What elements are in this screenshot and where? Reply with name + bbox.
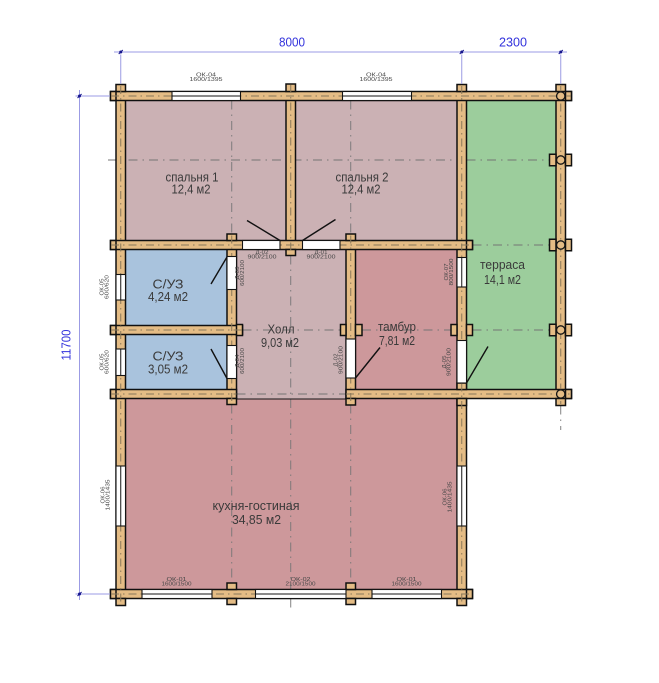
svg-text:12,4 м2: 12,4 м2: [342, 182, 381, 197]
svg-text:34,85 м2: 34,85 м2: [232, 512, 281, 527]
svg-text:кухня-гостиная: кухня-гостиная: [213, 498, 300, 513]
svg-text:14,1 м2: 14,1 м2: [484, 272, 521, 287]
svg-text:900/2100: 900/2100: [447, 348, 453, 376]
svg-text:тамбур: тамбур: [378, 319, 416, 334]
svg-text:4,24 м2: 4,24 м2: [148, 289, 188, 304]
svg-text:900/2100: 900/2100: [338, 346, 344, 374]
svg-text:2100/1500: 2100/1500: [286, 582, 316, 588]
svg-text:1600/1395: 1600/1395: [190, 77, 223, 83]
svg-text:900/2100: 900/2100: [307, 254, 336, 260]
svg-text:8000: 8000: [279, 35, 305, 50]
svg-text:600/2100: 600/2100: [240, 348, 246, 374]
svg-text:1400/1435: 1400/1435: [106, 480, 112, 511]
svg-text:800/1500: 800/1500: [449, 258, 455, 285]
svg-text:1600/1500: 1600/1500: [392, 582, 422, 588]
svg-text:600/2100: 600/2100: [240, 260, 246, 286]
svg-text:900/2100: 900/2100: [248, 254, 277, 260]
svg-text:1400/1435: 1400/1435: [448, 482, 454, 513]
svg-text:600/620: 600/620: [104, 350, 110, 374]
svg-text:600/620: 600/620: [104, 275, 110, 299]
svg-text:1600/1500: 1600/1500: [162, 582, 192, 588]
svg-text:3,05 м2: 3,05 м2: [148, 362, 188, 377]
svg-text:7,81 м2: 7,81 м2: [379, 333, 415, 348]
svg-text:11700: 11700: [59, 330, 74, 361]
svg-text:9,03 м2: 9,03 м2: [261, 335, 299, 350]
svg-text:12,4 м2: 12,4 м2: [172, 182, 211, 197]
svg-text:1600/1395: 1600/1395: [360, 77, 393, 83]
svg-text:2300: 2300: [499, 35, 527, 50]
svg-text:терраса: терраса: [480, 257, 526, 272]
